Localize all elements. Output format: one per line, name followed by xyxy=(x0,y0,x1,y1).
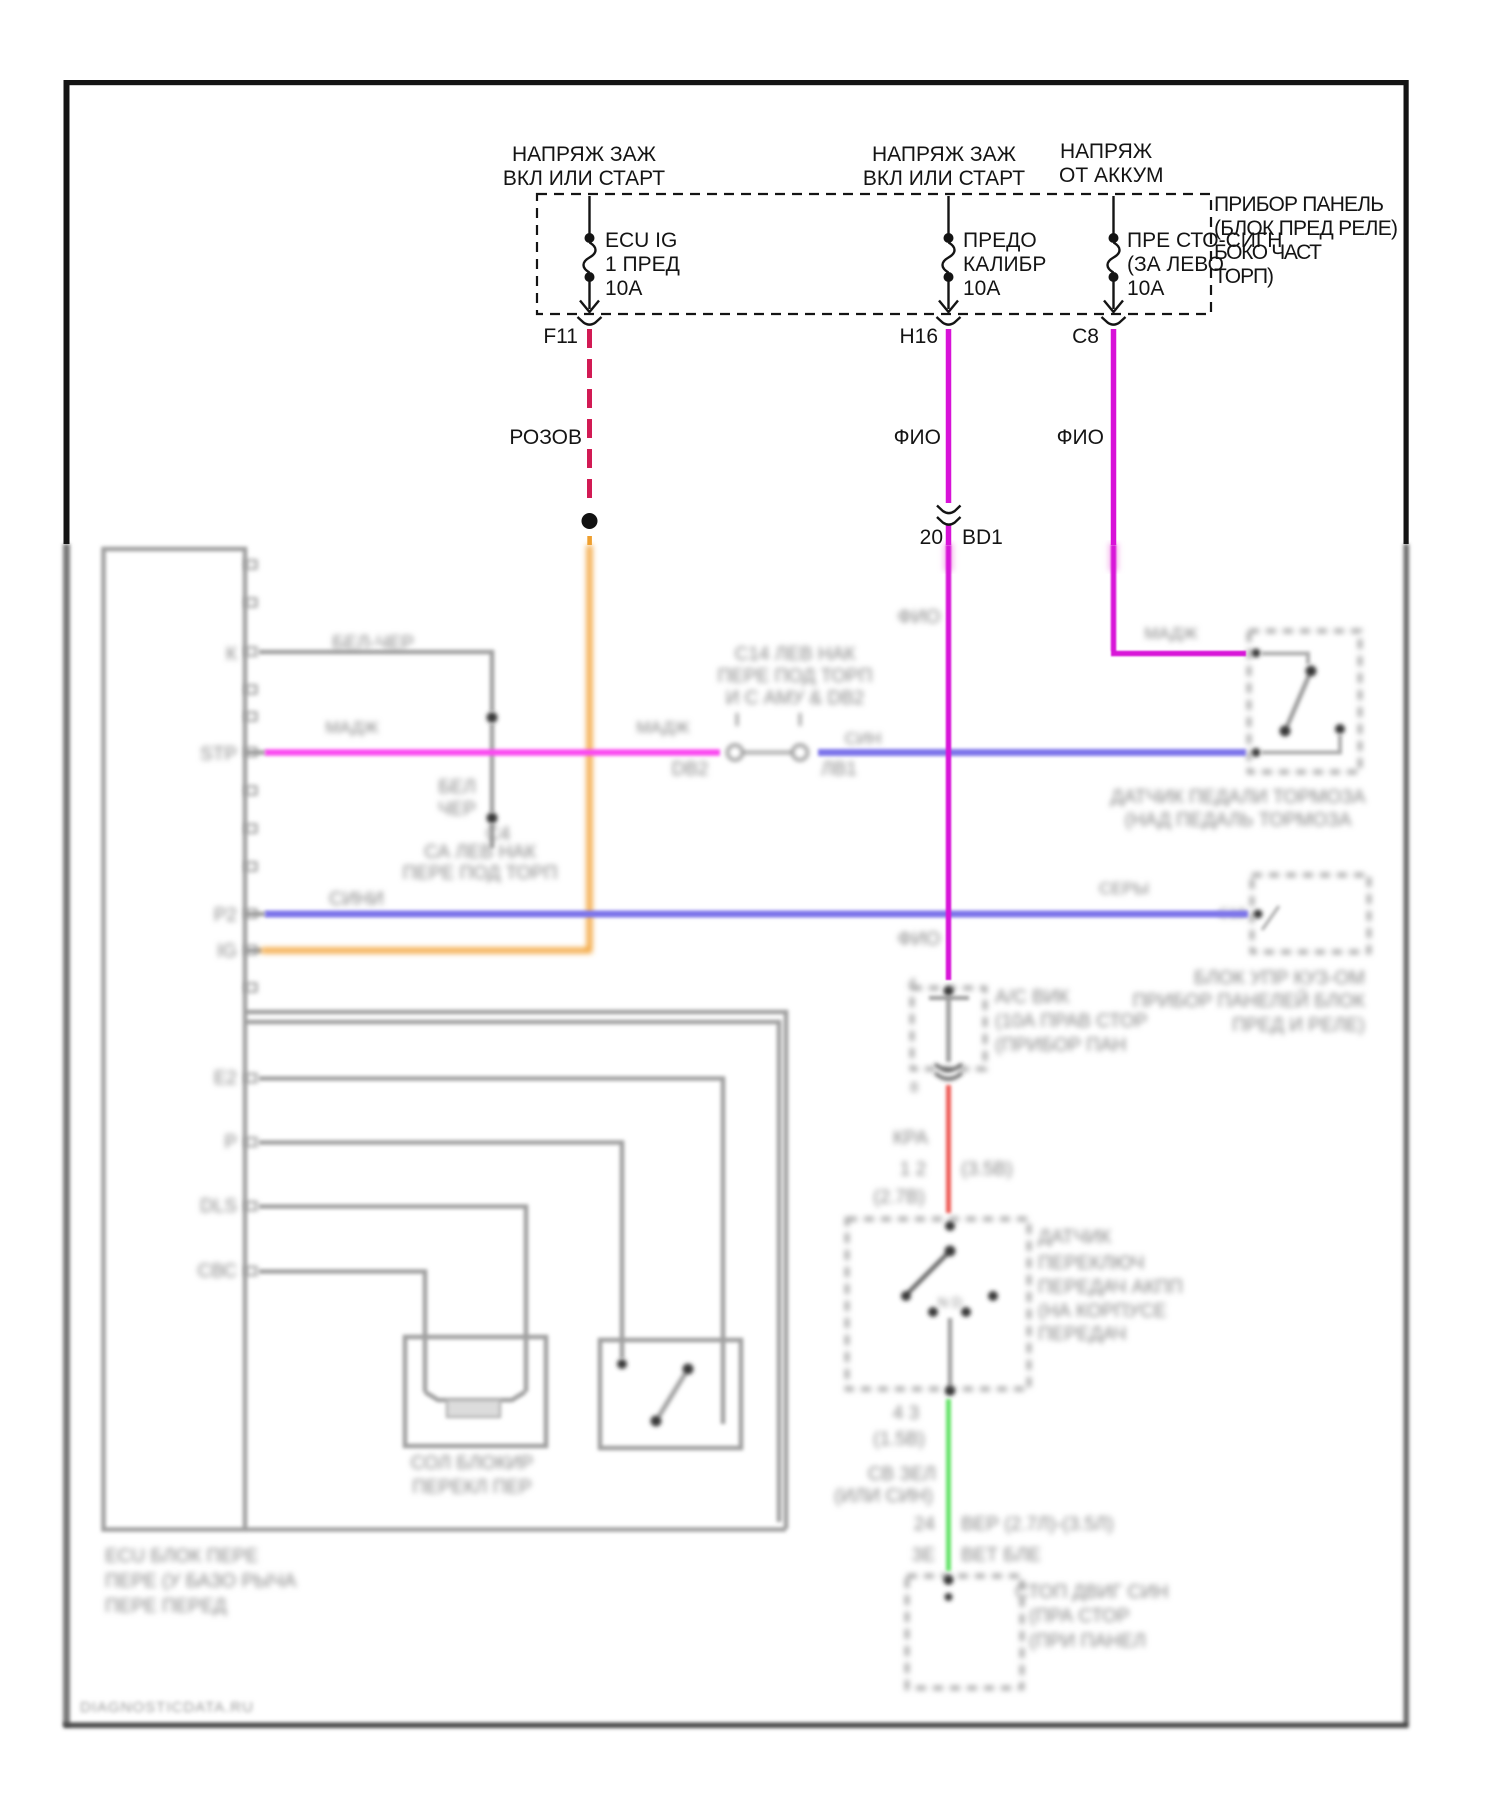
svg-text:МАДЖ: МАДЖ xyxy=(325,718,379,737)
svg-text:3Е: 3Е xyxy=(912,1545,935,1566)
svg-text:ФИО: ФИО xyxy=(898,607,941,628)
svg-text:БЛОК УПР КУЗ-ОМ: БЛОК УПР КУЗ-ОМ xyxy=(1194,968,1365,989)
svg-text:СА ЛЕВ НАК: СА ЛЕВ НАК xyxy=(424,842,536,863)
svg-text:N D: N D xyxy=(938,1294,962,1310)
svg-text:ПЕРЕДАЧ: ПЕРЕДАЧ xyxy=(1038,1324,1126,1345)
svg-text:F11: F11 xyxy=(543,325,578,348)
svg-text:КРА: КРА xyxy=(893,1128,928,1149)
svg-text:(ИЛИ СИН): (ИЛИ СИН) xyxy=(834,1486,933,1507)
svg-text:1 ПРЕД: 1 ПРЕД xyxy=(605,253,680,276)
svg-text:Е2: Е2 xyxy=(214,1068,237,1089)
svg-text:С14 ЛЕВ НАК: С14 ЛЕВ НАК xyxy=(735,644,856,665)
svg-text:10А: 10А xyxy=(1127,277,1164,300)
svg-text:ФИО: ФИО xyxy=(898,929,941,950)
svg-text:ECU IG: ECU IG xyxy=(605,229,677,252)
svg-text:ОТ АККУМ: ОТ АККУМ xyxy=(1059,164,1164,187)
svg-text:DIAGNOSTICDATA.RU: DIAGNOSTICDATA.RU xyxy=(80,1699,254,1716)
svg-text:СОЛ БЛОКИР: СОЛ БЛОКИР xyxy=(411,1453,534,1474)
svg-text:20: 20 xyxy=(920,526,943,549)
svg-text:ПЕРЕ ПЕРЕД: ПЕРЕ ПЕРЕД xyxy=(105,1596,227,1617)
svg-text:ПЕРЕКЛ ПЕР: ПЕРЕКЛ ПЕР xyxy=(412,1477,532,1498)
svg-text:К: К xyxy=(226,644,237,665)
svg-text:ПРИБОР ПАНЕЛЬ: ПРИБОР ПАНЕЛЬ xyxy=(1214,193,1384,216)
svg-text:МАДЖ: МАДЖ xyxy=(636,718,690,737)
svg-text:STP: STP xyxy=(200,744,237,765)
svg-text:ВЕТ БЛЕ: ВЕТ БЛЕ xyxy=(961,1545,1041,1566)
svg-text:ВЕР (2.7Л)-(3.5Л): ВЕР (2.7Л)-(3.5Л) xyxy=(961,1514,1114,1535)
svg-text:СИН: СИН xyxy=(845,729,882,748)
svg-text:ФИО: ФИО xyxy=(1057,426,1104,449)
svg-text:СИНИ: СИНИ xyxy=(329,889,384,910)
svg-text:СТОП ДВИГ СИН: СТОП ДВИГ СИН xyxy=(1015,1582,1168,1603)
svg-text:(ПРА СТОР: (ПРА СТОР xyxy=(1029,1606,1130,1627)
svg-text:А/С ВИК: А/С ВИК xyxy=(995,987,1069,1008)
svg-text:24: 24 xyxy=(914,1514,936,1535)
svg-text:ЛВ1: ЛВ1 xyxy=(821,759,857,780)
svg-text:БЕЛ-ЧЕР: БЕЛ-ЧЕР xyxy=(332,633,414,654)
svg-text:BD1: BD1 xyxy=(962,526,1003,549)
svg-text:ЧЕР: ЧЕР xyxy=(438,799,476,820)
svg-text:4: 4 xyxy=(908,975,916,992)
svg-text:НАПРЯЖ: НАПРЯЖ xyxy=(1060,140,1153,163)
svg-text:Р2: Р2 xyxy=(214,905,237,926)
svg-text:И С АМУ & DB2: И С АМУ & DB2 xyxy=(726,688,865,709)
svg-text:1 2: 1 2 xyxy=(900,1159,926,1180)
svg-text:DB2: DB2 xyxy=(672,759,709,780)
svg-text:НАПРЯЖ ЗАЖ: НАПРЯЖ ЗАЖ xyxy=(512,143,657,166)
svg-text:МАДЖ: МАДЖ xyxy=(1144,624,1198,643)
svg-text:10А: 10А xyxy=(963,277,1000,300)
svg-text:ПЕРЕДАЧ АКПП: ПЕРЕДАЧ АКПП xyxy=(1038,1277,1183,1298)
svg-text:ПЕРЕ ПОД ТОРП: ПЕРЕ ПОД ТОРП xyxy=(718,666,873,687)
svg-text:С8: С8 xyxy=(1072,325,1099,348)
svg-text:(НАД ПЕДАЛЬ ТОРМОЗА: (НАД ПЕДАЛЬ ТОРМОЗА xyxy=(1125,810,1352,831)
svg-text:НАПРЯЖ ЗАЖ: НАПРЯЖ ЗАЖ xyxy=(872,143,1017,166)
svg-text:4 3: 4 3 xyxy=(893,1403,919,1424)
svg-text:ПРЕДО: ПРЕДО xyxy=(963,229,1037,252)
svg-text:ДАТЧИК ПЕДАЛИ ТОРМОЗА: ДАТЧИК ПЕДАЛИ ТОРМОЗА xyxy=(1111,787,1366,808)
svg-text:РОЗОВ: РОЗОВ xyxy=(509,426,582,449)
svg-text:(2.7В): (2.7В) xyxy=(873,1187,925,1208)
svg-text:ПРЕД И РЕЛЕ): ПРЕД И РЕЛЕ) xyxy=(1232,1015,1365,1036)
svg-text:ECU БЛОК ПЕРЕ: ECU БЛОК ПЕРЕ xyxy=(105,1546,258,1567)
svg-text:ПЕРЕ ПОД ТОРП: ПЕРЕ ПОД ТОРП xyxy=(403,863,558,884)
svg-text:DLS: DLS xyxy=(200,1196,237,1217)
svg-text:ПРЕ СТО-СИГН: ПРЕ СТО-СИГН xyxy=(1127,229,1282,252)
svg-text:(ПРИ ПАНЕЛ: (ПРИ ПАНЕЛ xyxy=(1029,1631,1146,1652)
svg-text:10А: 10А xyxy=(605,277,642,300)
svg-text:СВС: СВС xyxy=(198,1261,237,1282)
svg-text:ВКЛ ИЛИ СТАРТ: ВКЛ ИЛИ СТАРТ xyxy=(503,167,665,190)
svg-text:(НА КОРПУСЕ: (НА КОРПУСЕ xyxy=(1038,1301,1166,1322)
svg-text:(3.5В): (3.5В) xyxy=(961,1159,1013,1180)
svg-text:ФИО: ФИО xyxy=(894,426,941,449)
svg-text:IG: IG xyxy=(217,941,237,962)
svg-text:(ЗА ЛЕВО: (ЗА ЛЕВО xyxy=(1127,253,1224,276)
svg-text:8: 8 xyxy=(910,1079,918,1096)
svg-text:(10А ПРАВ СТОР: (10А ПРАВ СТОР xyxy=(995,1011,1147,1032)
svg-text:ПРИБОР ПАНЕЛЕЙ БЛОК: ПРИБОР ПАНЕЛЕЙ БЛОК xyxy=(1132,990,1365,1012)
svg-text:ПЕРЕКЛЮЧ: ПЕРЕКЛЮЧ xyxy=(1038,1253,1144,1274)
svg-text:КАЛИБР: КАЛИБР xyxy=(963,253,1046,276)
svg-text:СЕРЫ: СЕРЫ xyxy=(1099,879,1149,898)
svg-text:Р: Р xyxy=(224,1132,237,1153)
svg-text:ПЕРЕ (У БАЗО РЫЧА: ПЕРЕ (У БАЗО РЫЧА xyxy=(105,1571,297,1592)
svg-text:Н16: Н16 xyxy=(899,325,938,348)
svg-text:(1.5В): (1.5В) xyxy=(873,1429,925,1450)
svg-text:ДАТЧИК: ДАТЧИК xyxy=(1038,1227,1111,1248)
svg-text:(ПРИБОР ПАН: (ПРИБОР ПАН xyxy=(995,1035,1126,1056)
svg-text:СВ ЗЕЛ: СВ ЗЕЛ xyxy=(868,1464,936,1485)
svg-text:БЕЛ: БЕЛ xyxy=(438,777,476,798)
svg-text:ВКЛ ИЛИ СТАРТ: ВКЛ ИЛИ СТАРТ xyxy=(863,167,1025,190)
